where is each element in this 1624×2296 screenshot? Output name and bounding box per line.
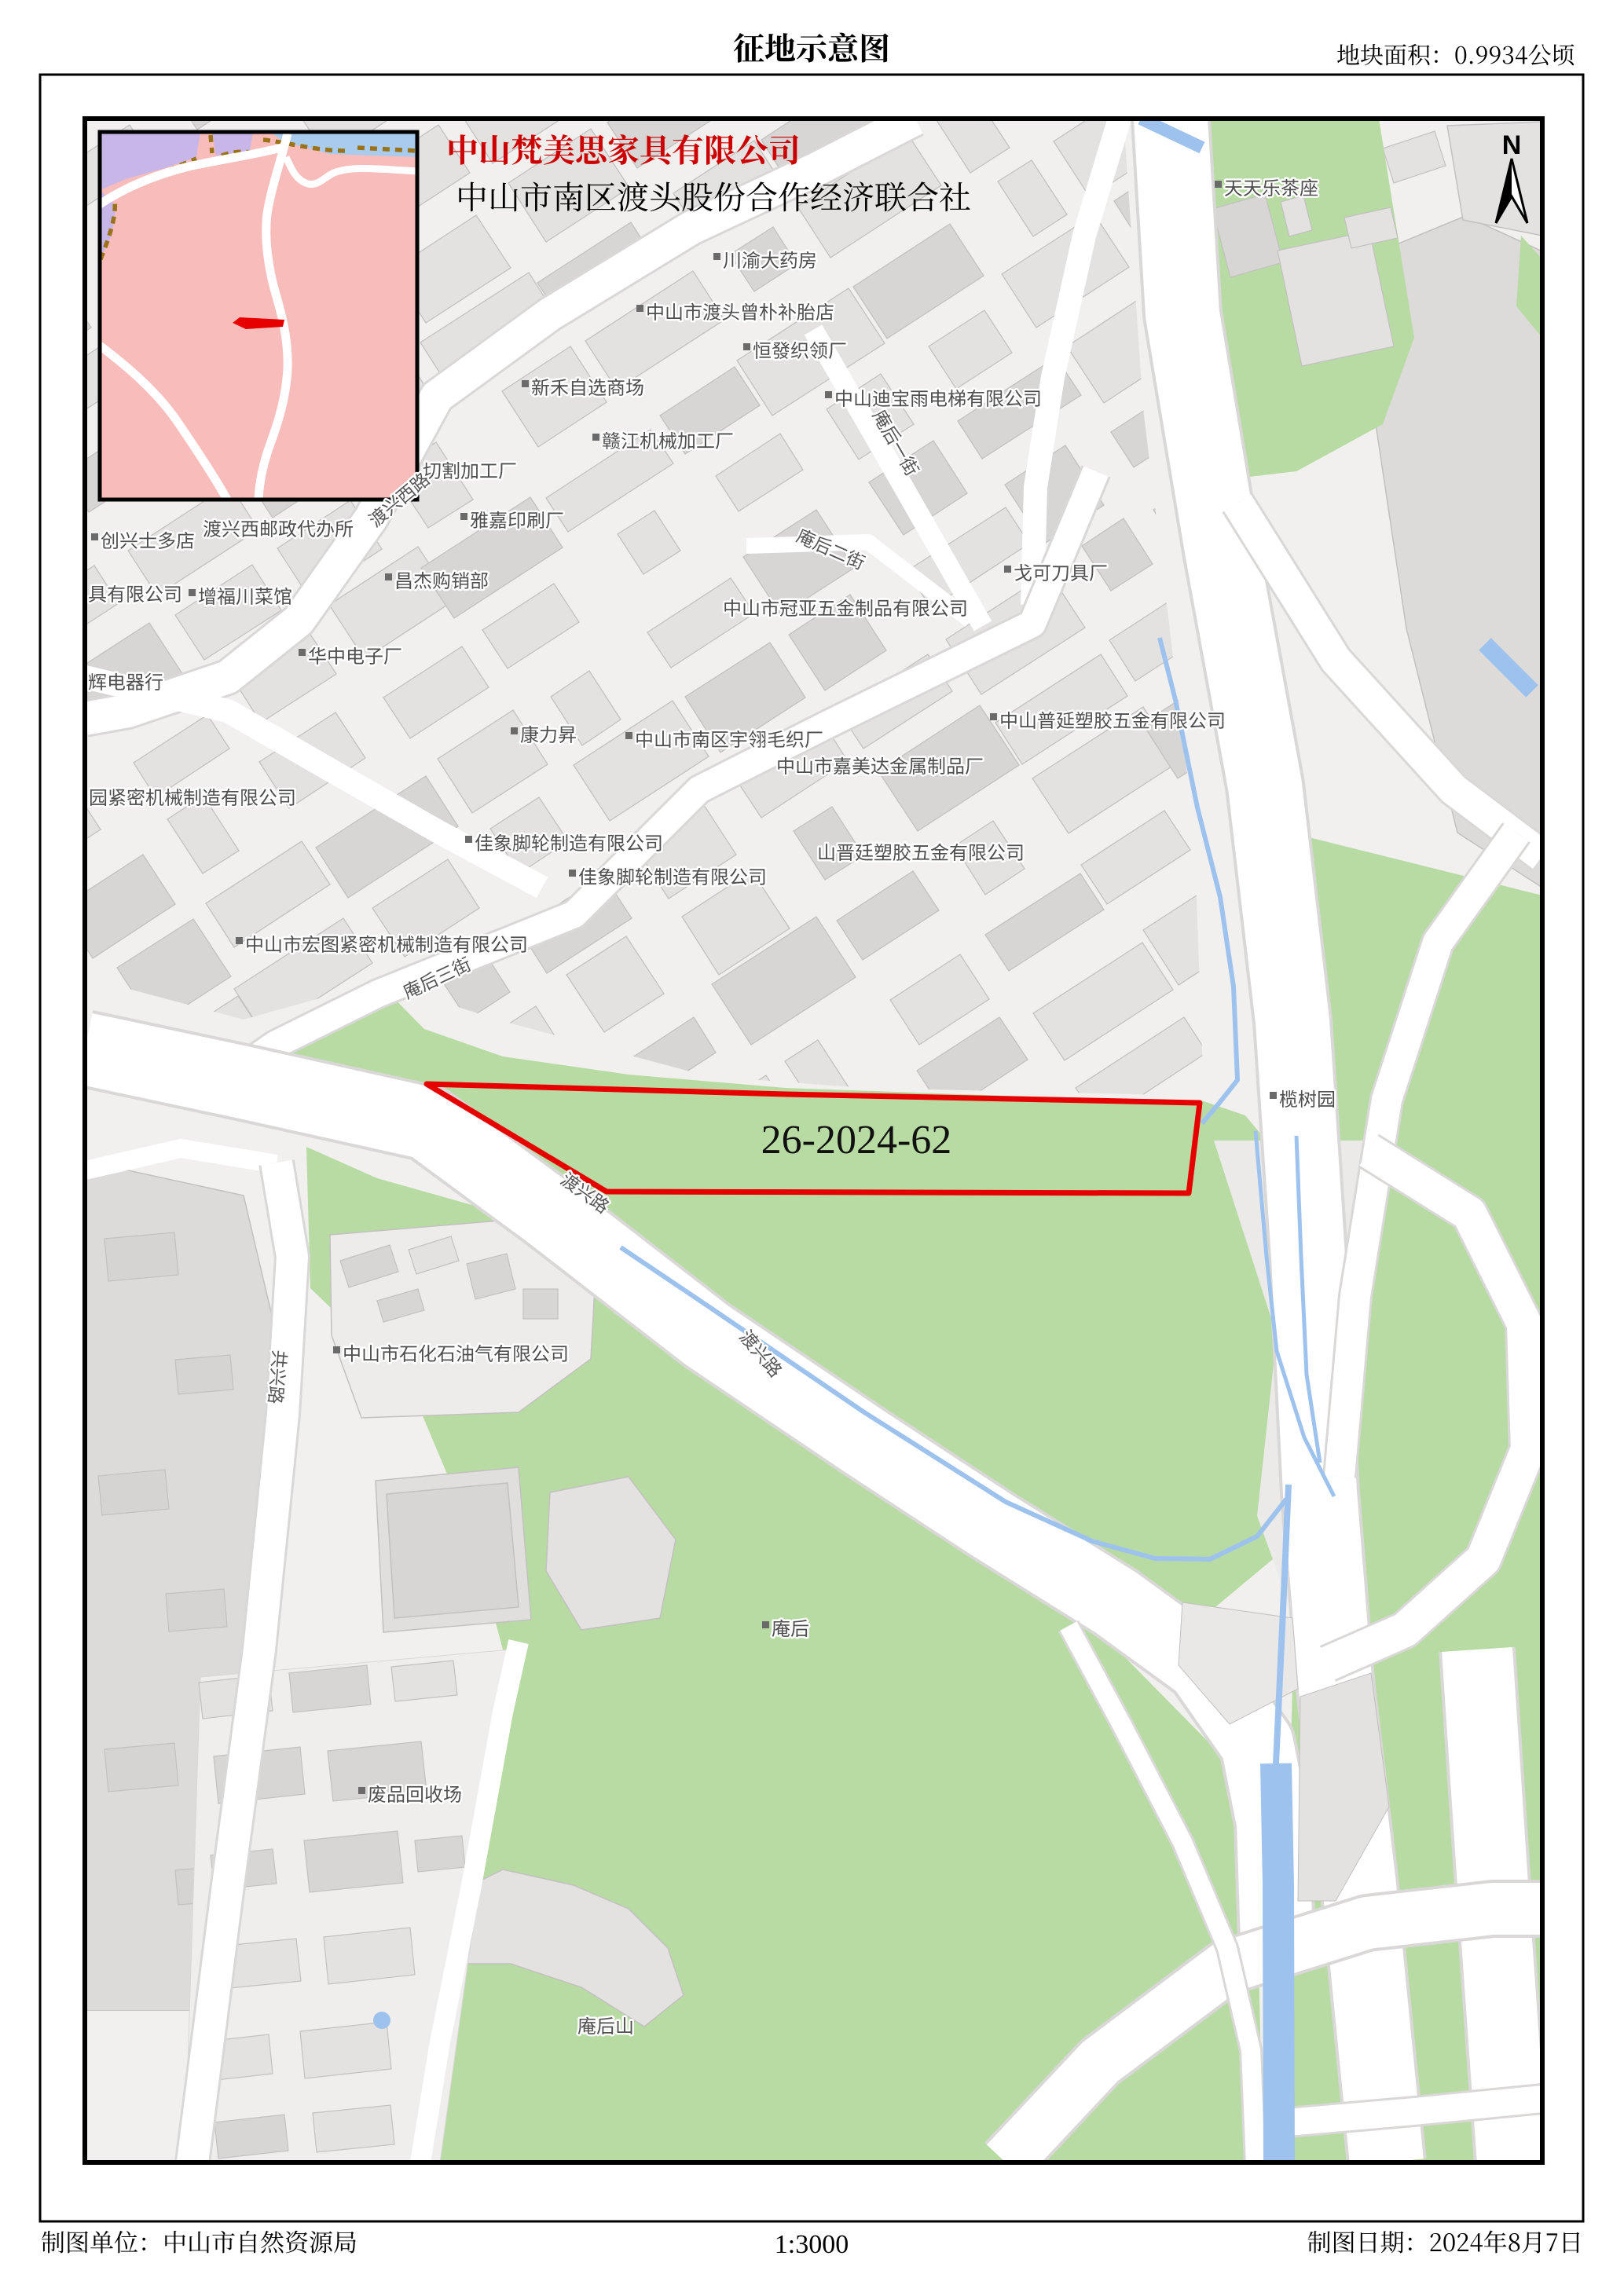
svg-text:N: N xyxy=(1502,130,1522,160)
svg-text:1:3000: 1:3000 xyxy=(775,2230,849,2259)
svg-text:26-2024-62: 26-2024-62 xyxy=(761,1118,952,1163)
